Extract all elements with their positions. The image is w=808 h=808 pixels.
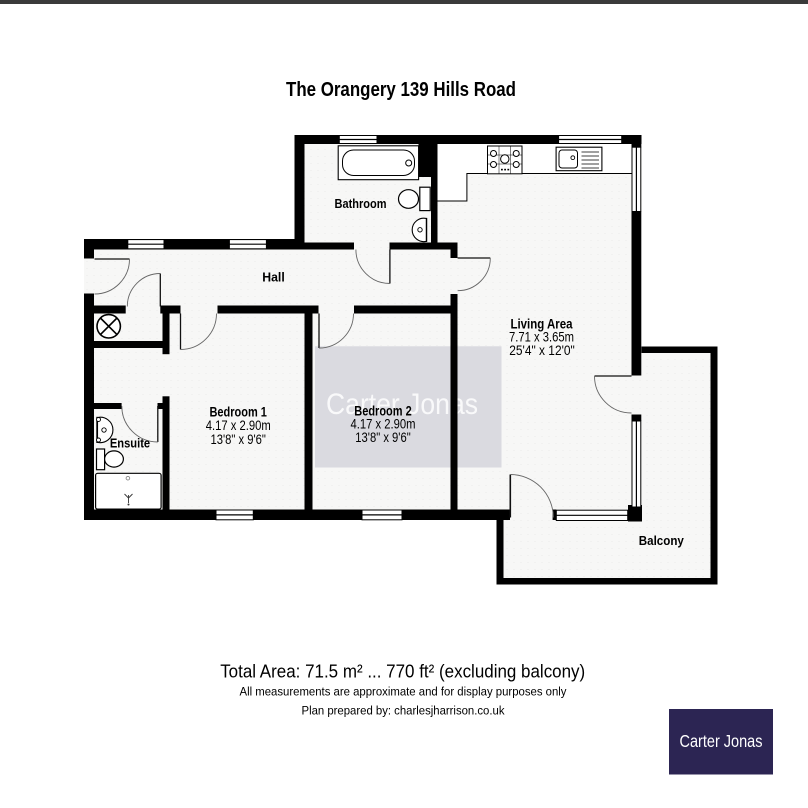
- svg-text:4.17 x 2.90m: 4.17 x 2.90m: [206, 418, 271, 433]
- svg-text:Carter Jonas: Carter Jonas: [680, 731, 763, 751]
- svg-text:13'8" x 9'6": 13'8" x 9'6": [211, 432, 267, 447]
- svg-text:Total Area: 71.5 m² ... 770 ft: Total Area: 71.5 m² ... 770 ft² (excludi…: [220, 661, 585, 682]
- svg-text:Bathroom: Bathroom: [335, 196, 387, 211]
- svg-text:The Orangery 139 Hills Road: The Orangery 139 Hills Road: [286, 79, 516, 101]
- svg-text:Hall: Hall: [262, 270, 285, 285]
- svg-text:Ensuite: Ensuite: [110, 436, 150, 451]
- svg-text:Plan prepared by: charlesjharr: Plan prepared by: charlesjharrison.co.uk: [302, 704, 506, 718]
- svg-text:All measurements are approxima: All measurements are approximate and for…: [240, 685, 568, 699]
- svg-text:25'4" x 12'0": 25'4" x 12'0": [509, 343, 575, 358]
- svg-text:Balcony: Balcony: [639, 533, 685, 548]
- svg-text:13'8" x 9'6": 13'8" x 9'6": [355, 430, 411, 445]
